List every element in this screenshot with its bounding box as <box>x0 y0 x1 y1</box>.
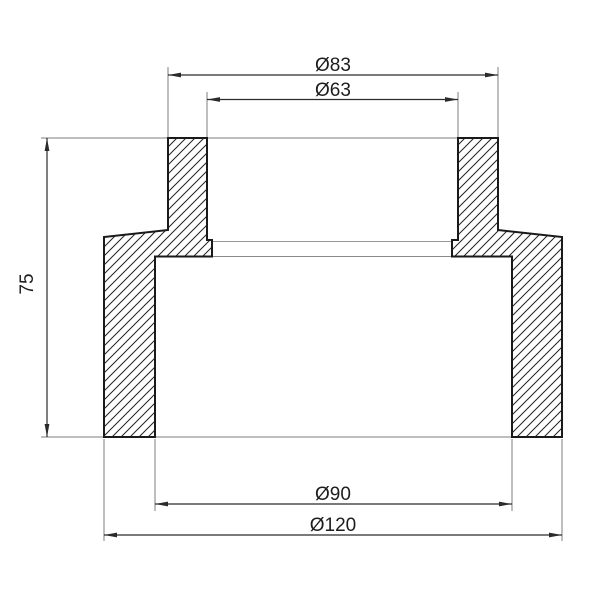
dim-top-inner-diameter: Ø63 <box>207 80 458 102</box>
dim-top-outer-diameter: Ø83 <box>168 55 498 77</box>
dim-bottom-outer-diameter: Ø120 <box>104 515 562 537</box>
arrowhead-left <box>104 533 117 538</box>
arrowhead-left <box>155 502 168 507</box>
dim-label-top-inner: Ø63 <box>315 80 351 101</box>
arrowhead-up <box>45 138 50 151</box>
arrowhead-left <box>168 73 181 78</box>
arrowhead-left <box>207 97 220 102</box>
section-cut-walls <box>104 138 562 437</box>
arrowhead-right <box>445 97 458 102</box>
arrowhead-right <box>499 502 512 507</box>
section-wall-right <box>452 138 562 437</box>
dim-label-bottom-outer: Ø120 <box>310 515 356 536</box>
arrowhead-right <box>485 73 498 78</box>
dim-label-bottom-inner: Ø90 <box>315 484 351 505</box>
drawing-page: Ø83 Ø63 75 Ø90 Ø120 <box>0 0 600 600</box>
section-wall-left <box>104 138 212 437</box>
technical-drawing-canvas: Ø83 Ø63 75 Ø90 Ø120 <box>0 0 600 600</box>
arrowhead-down <box>45 424 50 437</box>
dim-bottom-inner-diameter: Ø90 <box>155 484 512 506</box>
dim-label-height: 75 <box>17 273 38 294</box>
dim-overall-height: 75 <box>17 138 49 437</box>
arrowhead-right <box>549 533 562 538</box>
dim-label-top-outer: Ø83 <box>315 55 351 76</box>
